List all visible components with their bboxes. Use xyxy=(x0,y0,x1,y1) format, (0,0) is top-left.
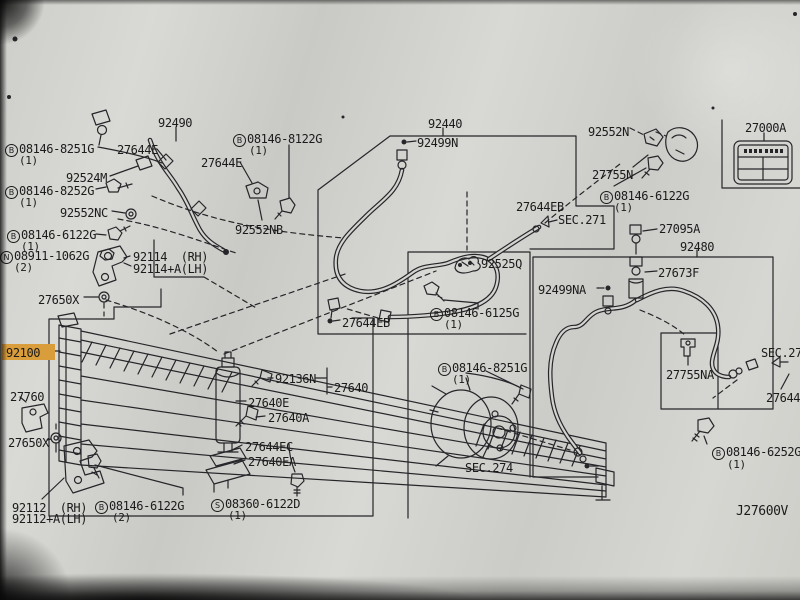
section-ref-274: SEC.274 xyxy=(465,462,513,474)
part-label-27640a[interactable]: 27640A xyxy=(268,412,309,424)
bolt-6125g-drawing xyxy=(424,282,444,301)
part-label-27640[interactable]: 27640 xyxy=(334,382,368,394)
circled-b-icon: B xyxy=(600,191,613,204)
part-label-92499n[interactable]: 92499N xyxy=(417,137,458,149)
part-label-27640ea[interactable]: 27640EA xyxy=(248,456,296,468)
circled-n-icon: N xyxy=(0,251,13,264)
part-label-27755n[interactable]: 27755N xyxy=(592,169,633,181)
part-label-27650x-a[interactable]: 27650X xyxy=(38,294,79,306)
part-label-27640e[interactable]: 27640E xyxy=(248,397,289,409)
part-label-92524m[interactable]: 92524M xyxy=(66,172,107,184)
part-label-08146-6122g-b[interactable]: B08146-6122G xyxy=(95,500,184,514)
qty-label: (2) xyxy=(112,512,131,524)
part-label-92552nb[interactable]: 92552NB xyxy=(235,224,283,236)
circled-b-icon: B xyxy=(430,308,443,321)
bolt-8252g-drawing xyxy=(106,179,132,192)
clip-27755na-drawing xyxy=(681,339,695,365)
part-label-08146-8122g[interactable]: B08146-8122G xyxy=(233,133,322,147)
circled-b-icon: B xyxy=(5,186,18,199)
sec271-arrow-icon xyxy=(541,216,557,227)
qty-label: (1) xyxy=(228,510,247,522)
circled-b-icon: B xyxy=(233,134,246,147)
part-label-92480[interactable]: 92480 xyxy=(680,241,714,253)
bracket-92552nb-drawing xyxy=(246,182,268,198)
circled-b-icon: B xyxy=(438,363,451,376)
part-label-92552n[interactable]: 92552N xyxy=(588,126,629,138)
part-label-27644e-b[interactable]: 27644E xyxy=(201,157,242,169)
part-label-92525q[interactable]: 92525Q xyxy=(481,258,522,270)
part-label-27650x-b[interactable]: 27650X xyxy=(8,437,49,449)
part-label-27760[interactable]: 27760 xyxy=(10,391,44,403)
circled-b-icon: B xyxy=(7,230,20,243)
part-label-27644e-a[interactable]: 27644E xyxy=(117,144,158,156)
qty-label: (1) xyxy=(452,374,471,386)
screw-08360-drawing xyxy=(291,474,304,496)
part-label-08146-6252g[interactable]: B08146-6252G xyxy=(712,446,800,460)
qty-label: (1) xyxy=(614,202,633,214)
part-label-27000a[interactable]: 27000A xyxy=(745,122,786,134)
part-label-27673f[interactable]: 27673F xyxy=(658,267,699,279)
bolt-6122g-c-drawing xyxy=(642,156,663,178)
qty-label: (1) xyxy=(727,459,746,471)
label-plate-27000a-drawing xyxy=(734,133,792,184)
qty-label: (1) xyxy=(19,197,38,209)
circled-b-icon: B xyxy=(95,501,108,514)
qty-label: (1) xyxy=(19,155,38,167)
part-label-92552nc[interactable]: 92552NC xyxy=(60,207,108,219)
part-label-27644eb-b[interactable]: 27644EB xyxy=(342,317,390,329)
bracket-92114-drawing xyxy=(93,246,127,286)
part-label-27644eb-a[interactable]: 27644EB xyxy=(516,201,564,213)
part-label-92440[interactable]: 92440 xyxy=(428,118,462,130)
circled-b-icon: B xyxy=(5,144,18,157)
frame-boxes xyxy=(49,120,800,518)
bolt-8122g-drawing xyxy=(275,198,295,219)
section-ref-27-truncated: SEC.27 xyxy=(761,347,800,359)
part-label-08360-6122d[interactable]: S08360-6122D xyxy=(211,498,300,512)
photo-specks xyxy=(7,12,797,119)
parts-diagram-page: 92490 B08146-8251G (1) 27644E 92524M B08… xyxy=(0,0,800,600)
section-ref-271-a: SEC.271 xyxy=(558,214,606,226)
valve-27095a-drawing xyxy=(630,225,657,249)
part-label-92112a[interactable]: 92112+A(LH) xyxy=(12,513,87,525)
qty-label: (2) xyxy=(14,262,33,274)
drawing-number: J27600V xyxy=(736,506,788,518)
part-label-27644-truncated[interactable]: 27644 xyxy=(766,392,800,404)
part-label-92136n[interactable]: 92136N xyxy=(275,373,316,385)
circled-b-icon: B xyxy=(712,447,725,460)
part-label-92499na[interactable]: 92499NA xyxy=(538,284,586,296)
part-label-27644ec[interactable]: 27644EC xyxy=(245,441,293,453)
bolt-6122g-drawing xyxy=(108,226,130,240)
hose-92480-drawing xyxy=(497,225,789,469)
part-label-92100[interactable]: 92100 xyxy=(6,347,40,359)
qty-label: (1) xyxy=(444,319,463,331)
part-label-27755na[interactable]: 27755NA xyxy=(666,369,714,381)
part-label-27095a[interactable]: 27095A xyxy=(659,223,700,235)
circled-s-icon: S xyxy=(211,499,224,512)
part-label-92114a[interactable]: 92114+A(LH) xyxy=(133,263,208,275)
bolt-6252g-drawing xyxy=(692,418,714,444)
qty-label: (1) xyxy=(249,145,268,157)
part-label-92490[interactable]: 92490 xyxy=(158,117,192,129)
bottom-left-parts-drawing xyxy=(20,373,521,499)
